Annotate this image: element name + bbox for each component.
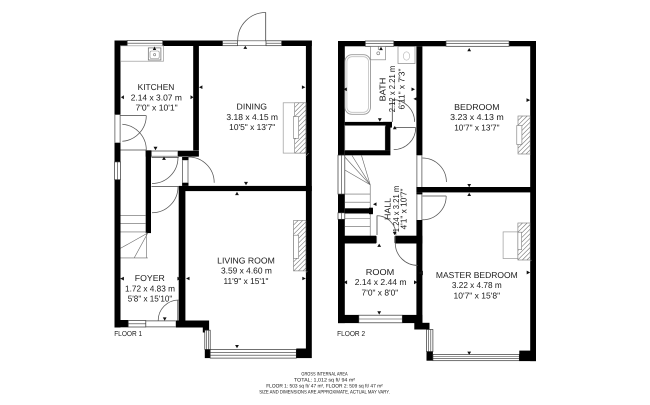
- svg-text:DINING: DINING: [237, 102, 268, 112]
- svg-text:1.72 x 4.83 m: 1.72 x 4.83 m: [125, 283, 175, 293]
- svg-text:BEDROOM: BEDROOM: [454, 102, 499, 112]
- svg-text:7'0" x 8'0": 7'0" x 8'0": [362, 288, 399, 298]
- svg-text:SIZE AND DIMENSIONS ARE APPROX: SIZE AND DIMENSIONS ARE APPROXIMATE, ACT…: [259, 390, 390, 396]
- svg-text:LIVING ROOM: LIVING ROOM: [217, 255, 275, 265]
- svg-text:3.22 x 4.78 m: 3.22 x 4.78 m: [452, 280, 502, 290]
- svg-text:7'0" x 10'1": 7'0" x 10'1": [135, 103, 177, 113]
- svg-text:11'9" x 15'1": 11'9" x 15'1": [224, 276, 269, 286]
- svg-text:10'5" x 13'7": 10'5" x 13'7": [229, 122, 275, 132]
- svg-text:KITCHEN: KITCHEN: [138, 82, 175, 92]
- svg-text:4'1" x 10'7": 4'1" x 10'7": [399, 189, 409, 230]
- svg-text:2.14 x 3.07 m: 2.14 x 3.07 m: [131, 92, 182, 102]
- svg-text:MASTER BEDROOM: MASTER BEDROOM: [436, 270, 518, 280]
- svg-text:GROSS INTERNAL AREA: GROSS INTERNAL AREA: [301, 371, 348, 377]
- svg-text:FLOOR 2: FLOOR 2: [337, 329, 365, 338]
- svg-text:2.14 x 2.44 m: 2.14 x 2.44 m: [355, 277, 407, 287]
- svg-text:FOYER: FOYER: [135, 273, 165, 283]
- svg-text:TOTAL: 1,012 sq ft/ 94 m²: TOTAL: 1,012 sq ft/ 94 m²: [294, 377, 356, 383]
- svg-text:3.18 x 4.15 m: 3.18 x 4.15 m: [226, 112, 278, 122]
- svg-text:3.23 x 4.13 m: 3.23 x 4.13 m: [450, 112, 504, 122]
- svg-text:6'11" x 7'3": 6'11" x 7'3": [396, 69, 406, 110]
- svg-text:ROOM: ROOM: [366, 267, 395, 277]
- svg-text:3.59 x 4.60 m: 3.59 x 4.60 m: [221, 266, 272, 276]
- svg-text:10'7" x 15'8": 10'7" x 15'8": [454, 291, 501, 301]
- svg-text:FLOOR 1: FLOOR 1: [114, 329, 142, 338]
- svg-text:10'7" x 13'7": 10'7" x 13'7": [454, 123, 499, 133]
- svg-text:5'8" x 15'10": 5'8" x 15'10": [128, 294, 173, 304]
